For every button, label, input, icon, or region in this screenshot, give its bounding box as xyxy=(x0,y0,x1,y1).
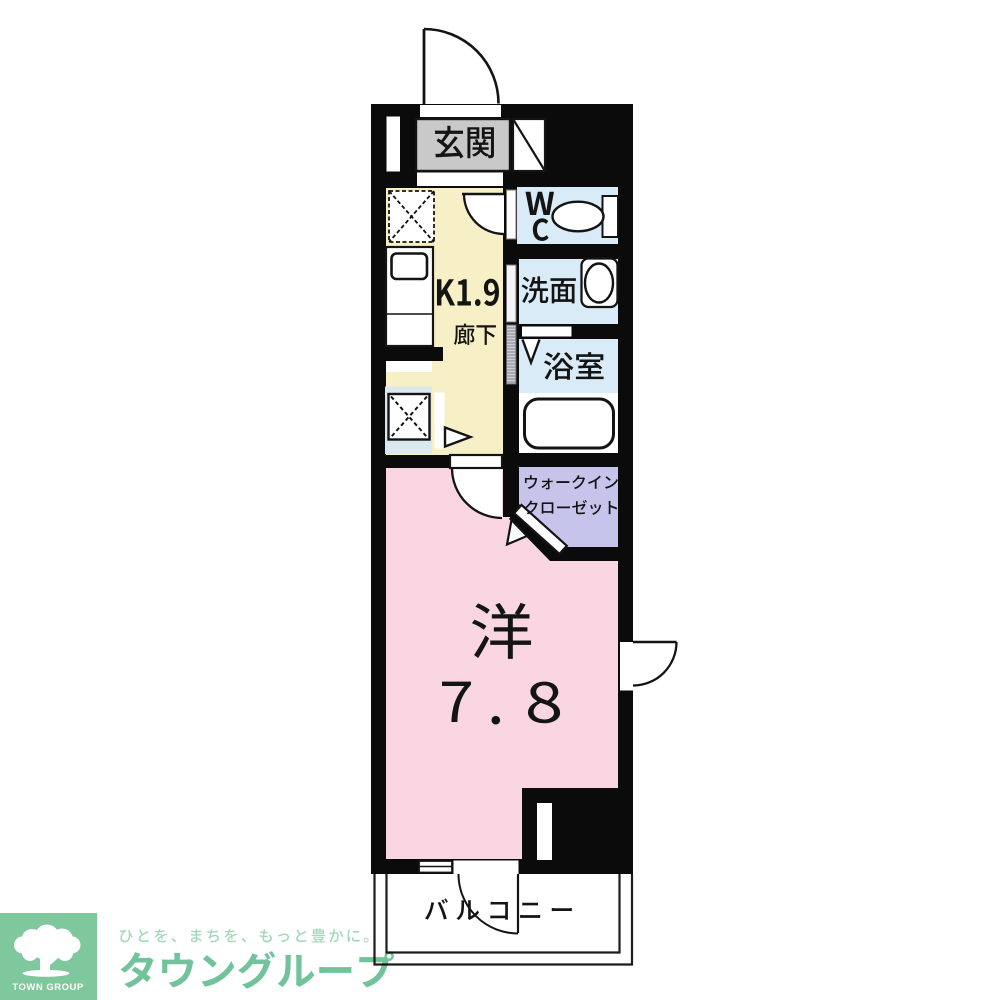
svg-text:TOWN GROUP: TOWN GROUP xyxy=(12,982,83,993)
